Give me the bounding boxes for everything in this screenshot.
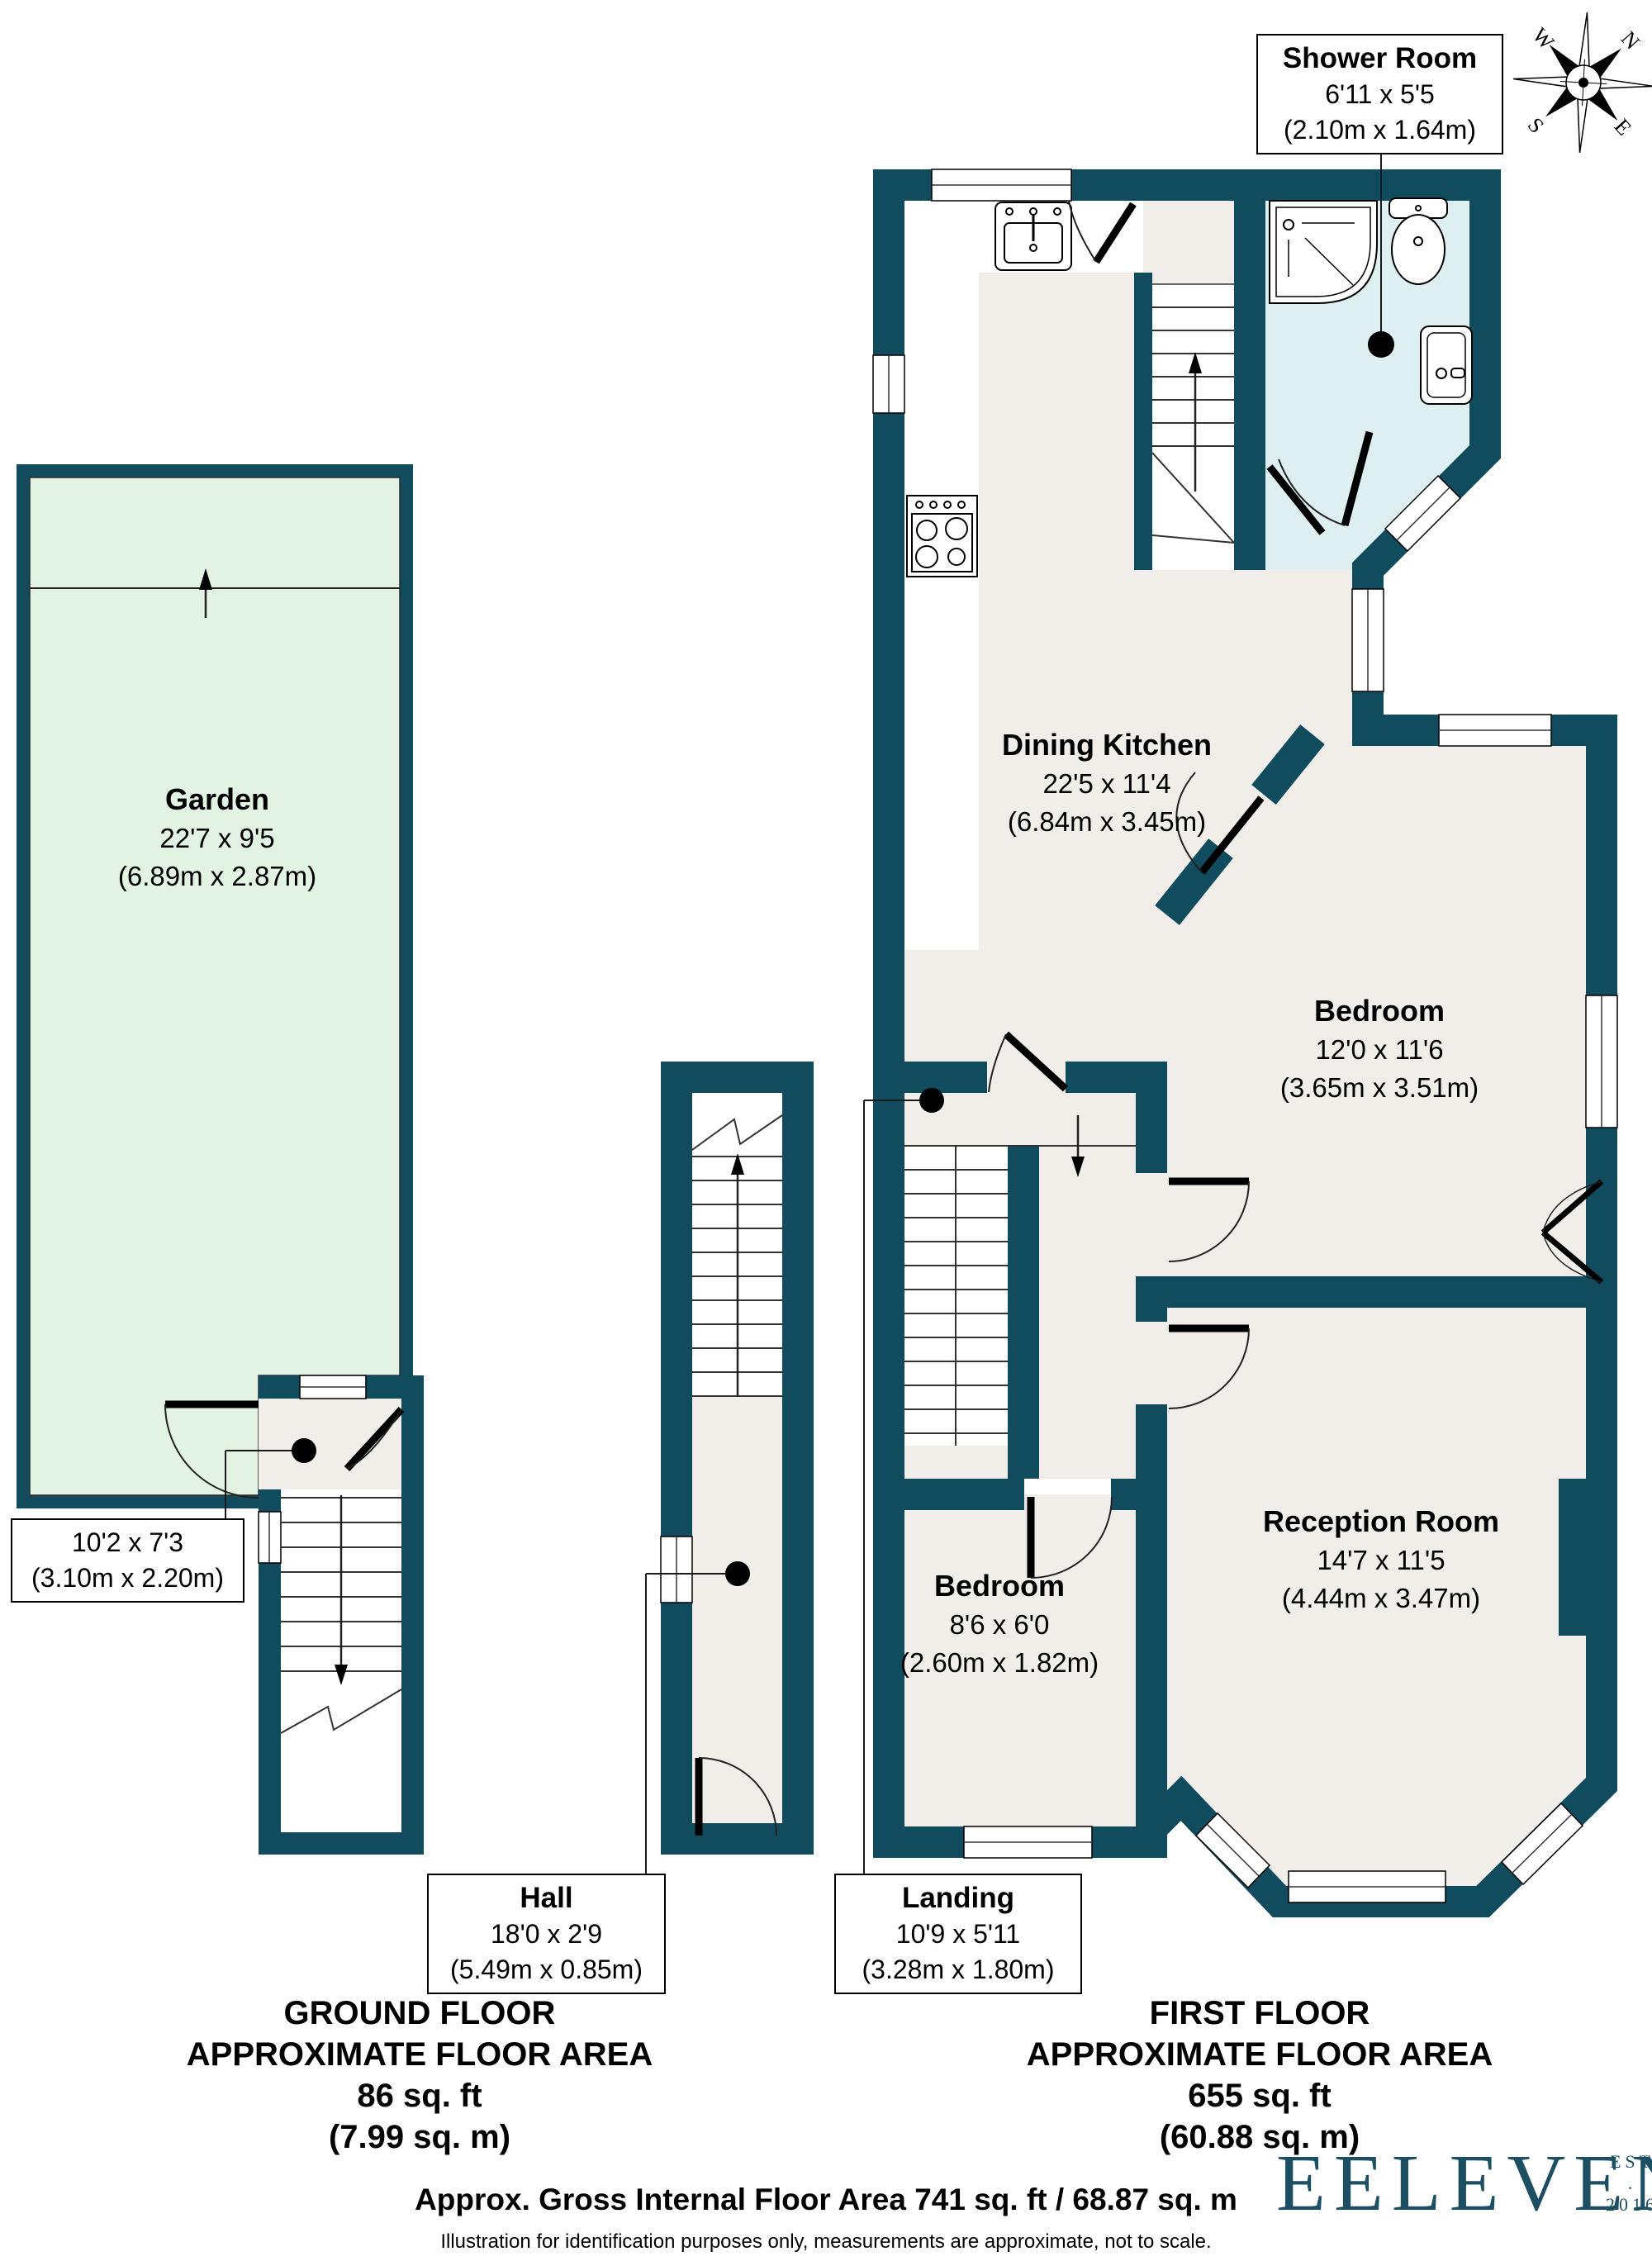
floor-name: FIRST FLOOR <box>1027 1993 1493 2034</box>
wash-basin <box>1421 326 1472 404</box>
dining-kitchen-label: Dining Kitchen 22'5 x 11'4 (6.84m x 3.45… <box>1002 725 1212 841</box>
toilet <box>1389 198 1447 284</box>
room-name: Reception Room <box>1263 1502 1499 1541</box>
reception-label: Reception Room 14'7 x 11'5 (4.44m x 3.47… <box>1263 1502 1499 1617</box>
compass-s: S <box>1523 113 1549 138</box>
floor-area-m: (7.99 sq. m) <box>187 2116 653 2158</box>
floor-subtitle: APPROXIMATE FLOOR AREA <box>187 2034 653 2075</box>
shower-room-label: Shower Room 6'11 x 5'5 (2.10m x 1.64m) <box>1256 34 1503 154</box>
upper-stairwell <box>1143 284 1250 570</box>
room-dims-imperial: 10'9 x 5'11 <box>836 1917 1080 1952</box>
compass-e: E <box>1610 114 1636 140</box>
first-floor-title: FIRST FLOOR APPROXIMATE FLOOR AREA 655 s… <box>1027 1993 1493 2158</box>
shower-tray <box>1270 201 1377 303</box>
room-name: Hall <box>429 1880 664 1917</box>
hall-leader-dot <box>725 1561 750 1586</box>
room-dims-imperial: 18'0 x 2'9 <box>429 1917 664 1952</box>
entrance-hall <box>646 1062 814 1874</box>
garden-label: Garden 22'7 x 9'5 (6.89m x 2.87m) <box>118 780 316 895</box>
room-dims-imperial: 22'5 x 11'4 <box>1002 765 1212 803</box>
disclaimer-text: Illustration for identification purposes… <box>440 2230 1211 2254</box>
shower-leader-dot <box>1368 331 1394 358</box>
logo-est-text: EST <box>1606 2151 1652 2173</box>
floor-name: GROUND FLOOR <box>187 1993 653 2034</box>
agency-logo: EELEVEN <box>1276 2146 1652 2221</box>
room-dims-metric: (6.89m x 2.87m) <box>118 857 316 895</box>
ground-floor-title: GROUND FLOOR APPROXIMATE FLOOR AREA 86 s… <box>187 1993 653 2158</box>
floor-area-ft: 86 sq. ft <box>187 2075 653 2116</box>
floor-area-ft: 655 sq. ft <box>1027 2075 1493 2116</box>
room-dims-metric: (2.10m x 1.64m) <box>1258 112 1502 148</box>
room-dims-imperial: 12'0 x 11'6 <box>1280 1031 1479 1069</box>
room-dims-metric: (2.60m x 1.82m) <box>900 1644 1099 1682</box>
landing-leader-dot <box>919 1088 944 1113</box>
room-dims-metric: (4.44m x 3.47m) <box>1263 1579 1499 1617</box>
compass-rose: N E S W <box>1480 0 1652 183</box>
chimney-breast <box>1559 1479 1602 1636</box>
ground-hall-leader-dot <box>292 1438 316 1463</box>
bedroom-small-label: Bedroom 8'6 x 6'0 (2.60m x 1.82m) <box>900 1566 1099 1682</box>
landing-label: Landing 10'9 x 5'11 (3.28m x 1.80m) <box>834 1874 1082 1994</box>
room-dims-metric: (3.10m x 2.20m) <box>12 1560 243 1596</box>
room-dims-imperial: 14'7 x 11'5 <box>1263 1541 1499 1579</box>
compass-n: N <box>1616 26 1645 55</box>
gross-area-text: Approx. Gross Internal Floor Area 741 sq… <box>415 2183 1237 2217</box>
room-name: Shower Room <box>1258 40 1502 77</box>
room-name: Bedroom <box>900 1566 1099 1606</box>
floor-subtitle: APPROXIMATE FLOOR AREA <box>1027 2034 1493 2075</box>
agency-logo-est: EST . 2016 <box>1606 2151 1652 2216</box>
room-dims-metric: (3.28m x 1.80m) <box>836 1952 1080 1988</box>
room-name: Garden <box>118 780 316 819</box>
garden-plot <box>17 464 413 1508</box>
kitchen-sink <box>995 202 1071 270</box>
room-dims-metric: (5.49m x 0.85m) <box>429 1952 664 1988</box>
room-dims-imperial: 22'7 x 9'5 <box>118 819 316 857</box>
bedroom-large-label: Bedroom 12'0 x 11'6 (3.65m x 3.51m) <box>1280 991 1479 1107</box>
hall-label: Hall 18'0 x 2'9 (5.49m x 0.85m) <box>427 1874 666 1994</box>
room-dims-imperial: 10'2 x 7'3 <box>12 1525 243 1560</box>
room-dims-metric: (6.84m x 3.45m) <box>1002 803 1212 841</box>
room-name: Landing <box>836 1880 1080 1917</box>
room-dims-imperial: 8'6 x 6'0 <box>900 1606 1099 1644</box>
room-name: Bedroom <box>1280 991 1479 1031</box>
logo-dot: . <box>1606 2173 1652 2194</box>
room-dims-metric: (3.65m x 3.51m) <box>1280 1069 1479 1107</box>
room-name: Dining Kitchen <box>1002 725 1212 765</box>
logo-year: 2016 <box>1606 2194 1652 2216</box>
floorplan-canvas: N E S W Shower Room 6'11 x 5'5 (2.10m x … <box>0 0 1652 2261</box>
ground-hall-dims-label: 10'2 x 7'3 (3.10m x 2.20m) <box>11 1518 244 1603</box>
stove <box>907 496 977 577</box>
floorplan-drawing: N E S W <box>0 0 1652 2261</box>
room-dims-imperial: 6'11 x 5'5 <box>1258 77 1502 112</box>
